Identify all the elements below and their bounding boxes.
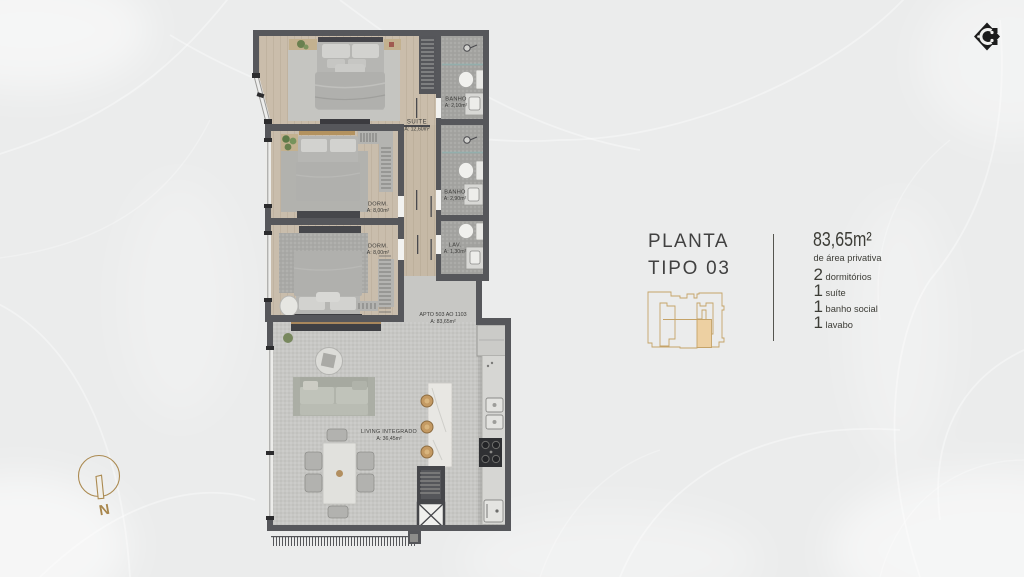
svg-text:A: 2,90m²: A: 2,90m² <box>444 196 467 202</box>
svg-text:BANHO: BANHO <box>444 190 466 196</box>
svg-text:A: 83,65m²: A: 83,65m² <box>430 319 456 325</box>
svg-text:A: 36,45m²: A: 36,45m² <box>376 436 402 442</box>
svg-text:SUITE: SUITE <box>407 120 427 126</box>
svg-text:DORM.: DORM. <box>368 244 388 250</box>
svg-text:LIVING INTEGRADO: LIVING INTEGRADO <box>361 429 417 435</box>
svg-text:A: 8,00m²: A: 8,00m² <box>367 208 390 214</box>
svg-text:APTO 503 AO 1103: APTO 503 AO 1103 <box>419 312 466 318</box>
svg-text:N: N <box>98 502 111 520</box>
svg-text:LAV.: LAV. <box>449 243 462 249</box>
svg-text:DORM.: DORM. <box>368 202 388 208</box>
svg-text:A: 2,10m²: A: 2,10m² <box>445 103 468 109</box>
svg-text:A: 12,60m²: A: 12,60m² <box>404 127 430 133</box>
svg-text:A: 8,00m²: A: 8,00m² <box>367 250 390 256</box>
svg-text:BANHO: BANHO <box>445 97 467 103</box>
svg-text:A: 1,30m²: A: 1,30m² <box>444 249 467 255</box>
